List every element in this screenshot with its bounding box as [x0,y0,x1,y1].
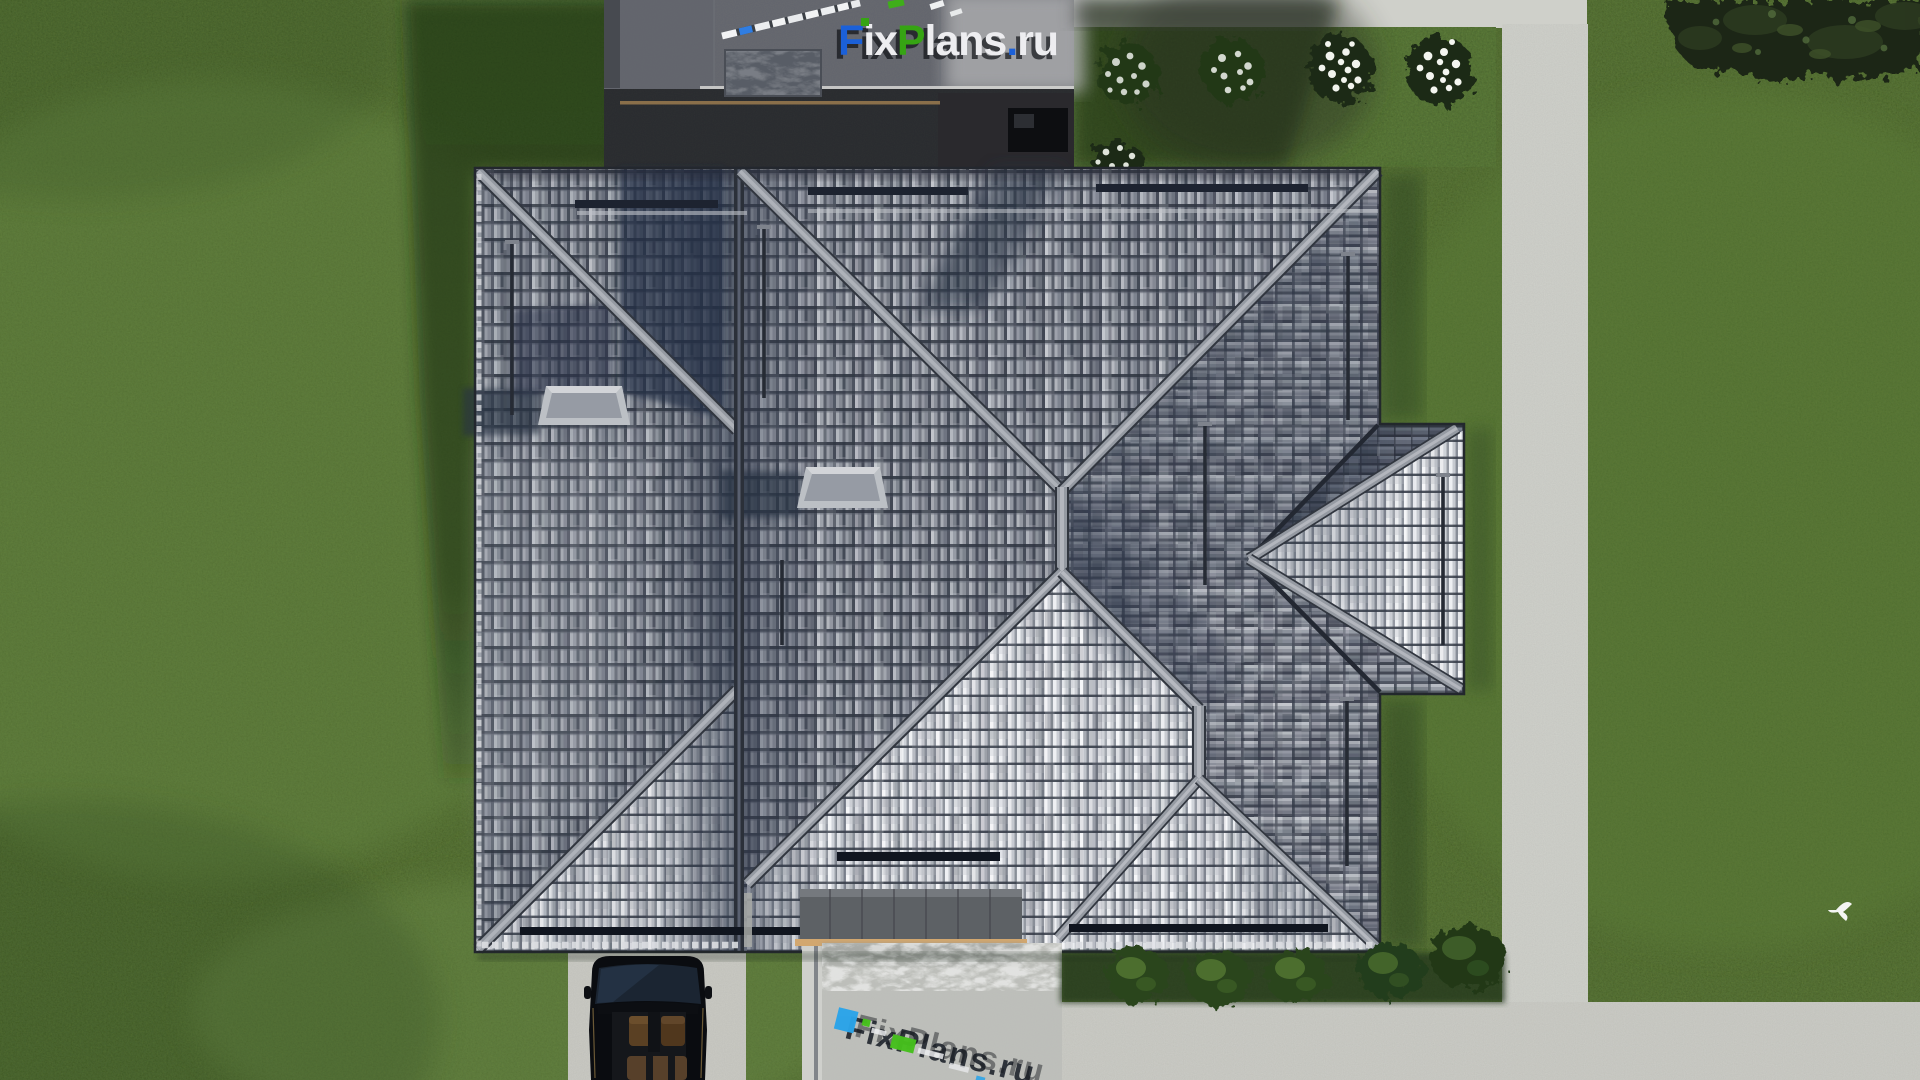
svg-text:FixPlans.ru: FixPlans.ru [838,17,1059,65]
